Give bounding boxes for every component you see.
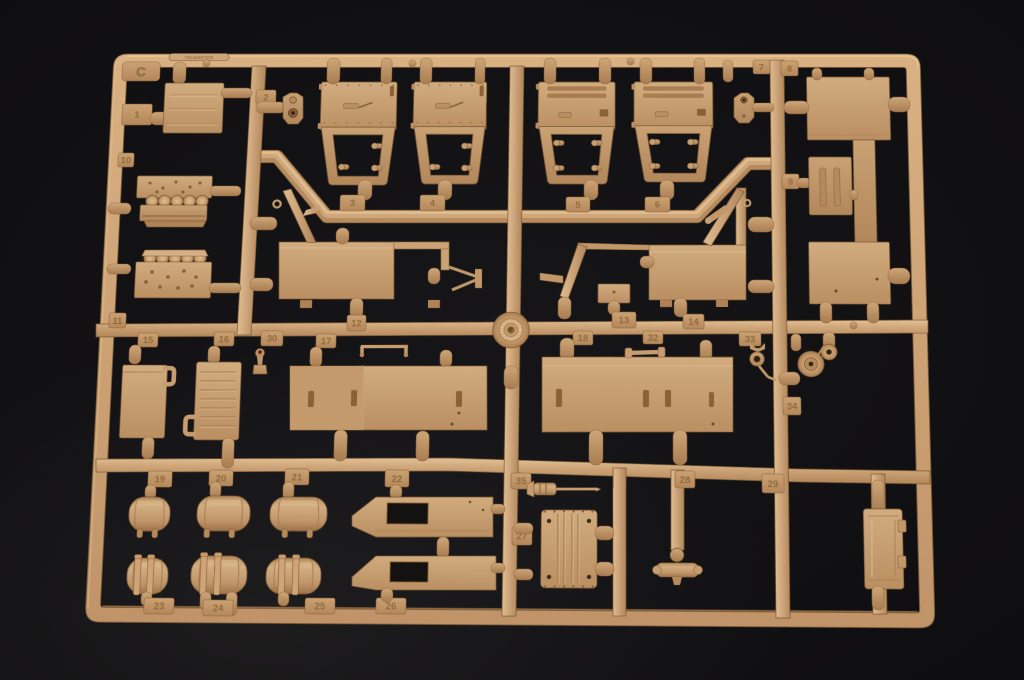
svg-text:26: 26 [385,601,396,612]
svg-text:24: 24 [212,603,223,614]
svg-text:6: 6 [655,200,660,210]
svg-text:2: 2 [263,92,269,102]
svg-text:30: 30 [267,333,278,343]
svg-text:5: 5 [575,200,580,210]
svg-text:11: 11 [112,316,122,326]
svg-text:3: 3 [350,198,356,208]
svg-text:12: 12 [351,318,362,328]
svg-text:14: 14 [688,317,699,327]
svg-text:33: 33 [745,334,756,344]
svg-text:19: 19 [154,474,165,485]
svg-text:18: 18 [578,333,589,343]
svg-text:9: 9 [788,177,793,187]
svg-text:7: 7 [759,62,764,72]
svg-text:10: 10 [121,155,132,165]
svg-text:32: 32 [648,332,659,342]
svg-text:35: 35 [516,476,527,487]
svg-text:15: 15 [143,335,154,345]
svg-text:22: 22 [392,473,403,484]
svg-text:29: 29 [768,478,779,489]
svg-text:21: 21 [292,472,303,483]
svg-text:25: 25 [314,601,325,612]
svg-text:13: 13 [619,315,630,325]
svg-text:1: 1 [134,110,140,120]
svg-text:17: 17 [321,336,332,346]
svg-text:8: 8 [787,64,792,74]
svg-text:23: 23 [153,601,164,612]
svg-text:C: C [136,65,147,80]
svg-text:16: 16 [219,334,230,344]
svg-text:4: 4 [430,198,435,208]
svg-text:28: 28 [680,474,691,485]
svg-text:TRUMPETER: TRUMPETER [184,55,213,60]
svg-text:34: 34 [787,401,798,412]
